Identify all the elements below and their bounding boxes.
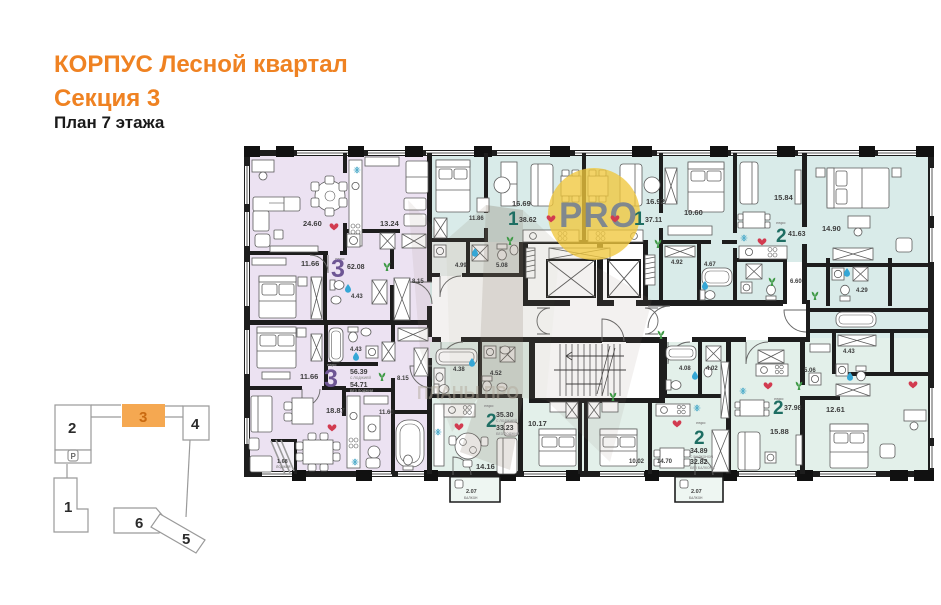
svg-text:3: 3 xyxy=(324,365,338,393)
svg-text:8.15: 8.15 xyxy=(412,279,424,285)
svg-text:38.62: 38.62 xyxy=(519,217,537,224)
svg-text:Секция 3: Секция 3 xyxy=(54,85,160,112)
svg-text:11.66: 11.66 xyxy=(300,372,318,381)
svg-text:1: 1 xyxy=(64,499,72,516)
svg-text:14.70: 14.70 xyxy=(657,459,673,465)
svg-text:3: 3 xyxy=(139,409,147,426)
svg-text:18.87: 18.87 xyxy=(326,406,345,415)
svg-text:4: 4 xyxy=(191,416,200,433)
svg-text:БЕЗ ЛОДЖИИ: БЕЗ ЛОДЖИИ xyxy=(350,389,374,393)
svg-text:10.02: 10.02 xyxy=(629,459,645,465)
svg-text:4.67: 4.67 xyxy=(704,262,716,268)
svg-text:4.02: 4.02 xyxy=(706,366,718,372)
svg-text:P: P xyxy=(71,452,77,461)
svg-text:6.60: 6.60 xyxy=(790,279,802,285)
svg-text:евро: евро xyxy=(776,220,786,225)
svg-text:4.29: 4.29 xyxy=(856,288,868,294)
svg-text:3: 3 xyxy=(331,255,345,283)
svg-text:62.08: 62.08 xyxy=(347,264,365,271)
svg-text:15.88: 15.88 xyxy=(770,427,789,436)
svg-text:БЕЗ ЛОДЖИИ: БЕЗ ЛОДЖИИ xyxy=(496,432,520,436)
svg-text:8.15: 8.15 xyxy=(397,376,409,382)
svg-text:1: 1 xyxy=(634,209,645,230)
svg-text:КОРПУС Лесной квартал: КОРПУС Лесной квартал xyxy=(54,51,348,78)
svg-text:4.92: 4.92 xyxy=(671,260,683,266)
svg-text:2: 2 xyxy=(68,420,76,437)
svg-text:2: 2 xyxy=(776,226,787,247)
svg-text:12.61: 12.61 xyxy=(826,405,845,414)
svg-text:16.69: 16.69 xyxy=(512,199,531,208)
svg-text:4.52: 4.52 xyxy=(490,371,502,377)
svg-text:4.43: 4.43 xyxy=(843,349,855,355)
svg-text:ПЛАНЫ ПРО: ПЛАНЫ ПРО xyxy=(417,383,519,403)
svg-text:11.60: 11.60 xyxy=(379,410,394,416)
svg-text:1: 1 xyxy=(508,209,519,230)
svg-text:14.90: 14.90 xyxy=(822,224,841,233)
svg-text:35.30: 35.30 xyxy=(496,412,514,419)
svg-text:4.38: 4.38 xyxy=(453,367,465,373)
svg-text:33.23: 33.23 xyxy=(496,425,514,432)
svg-text:10.17: 10.17 xyxy=(528,419,547,428)
svg-text:37.11: 37.11 xyxy=(645,217,662,224)
svg-text:24.60: 24.60 xyxy=(303,219,322,228)
svg-text:БЕЗ БАЛКОНА: БЕЗ БАЛКОНА xyxy=(690,466,715,470)
svg-text:2: 2 xyxy=(486,411,497,432)
svg-text:4.08: 4.08 xyxy=(679,366,691,372)
svg-text:БАЛКОН: БАЛКОН xyxy=(689,496,703,500)
svg-text:4.43: 4.43 xyxy=(351,294,363,300)
svg-text:10.60: 10.60 xyxy=(684,208,703,217)
svg-text:56.39: 56.39 xyxy=(350,369,368,376)
svg-text:15.84: 15.84 xyxy=(774,193,794,202)
svg-text:2: 2 xyxy=(773,398,784,419)
svg-text:ЛОДЖИЯ: ЛОДЖИЯ xyxy=(276,465,291,469)
svg-text:32.82: 32.82 xyxy=(690,459,708,466)
svg-text:14.16: 14.16 xyxy=(476,462,495,471)
svg-text:4.99: 4.99 xyxy=(455,263,467,269)
svg-text:БАЛКОН: БАЛКОН xyxy=(464,496,478,500)
svg-text:5: 5 xyxy=(182,531,190,548)
svg-text:5.06: 5.06 xyxy=(804,368,816,374)
svg-text:37.98: 37.98 xyxy=(784,405,802,412)
svg-text:16.92: 16.92 xyxy=(646,197,665,206)
svg-text:4.43: 4.43 xyxy=(350,347,362,353)
svg-text:54.71: 54.71 xyxy=(350,382,368,389)
svg-text:С ЛОДЖИЕЙ: С ЛОДЖИЕЙ xyxy=(496,419,518,423)
svg-text:евро: евро xyxy=(696,420,706,425)
svg-text:С ЛОДЖИЕЙ: С ЛОДЖИЕЙ xyxy=(350,376,372,380)
svg-text:13.24: 13.24 xyxy=(380,219,400,228)
svg-text:2.07: 2.07 xyxy=(691,489,702,495)
svg-text:PRO: PRO xyxy=(559,196,638,235)
svg-text:41.63: 41.63 xyxy=(788,231,806,238)
svg-text:2: 2 xyxy=(694,428,705,449)
svg-text:евро: евро xyxy=(484,403,494,408)
svg-text:11.86: 11.86 xyxy=(469,216,484,222)
svg-text:5.08: 5.08 xyxy=(496,263,508,269)
svg-text:34.89: 34.89 xyxy=(690,448,708,455)
svg-text:План 7 этажа: План 7 этажа xyxy=(54,113,165,132)
svg-text:2.07: 2.07 xyxy=(466,489,477,495)
svg-text:6: 6 xyxy=(135,515,143,532)
svg-text:11.66: 11.66 xyxy=(301,259,319,268)
